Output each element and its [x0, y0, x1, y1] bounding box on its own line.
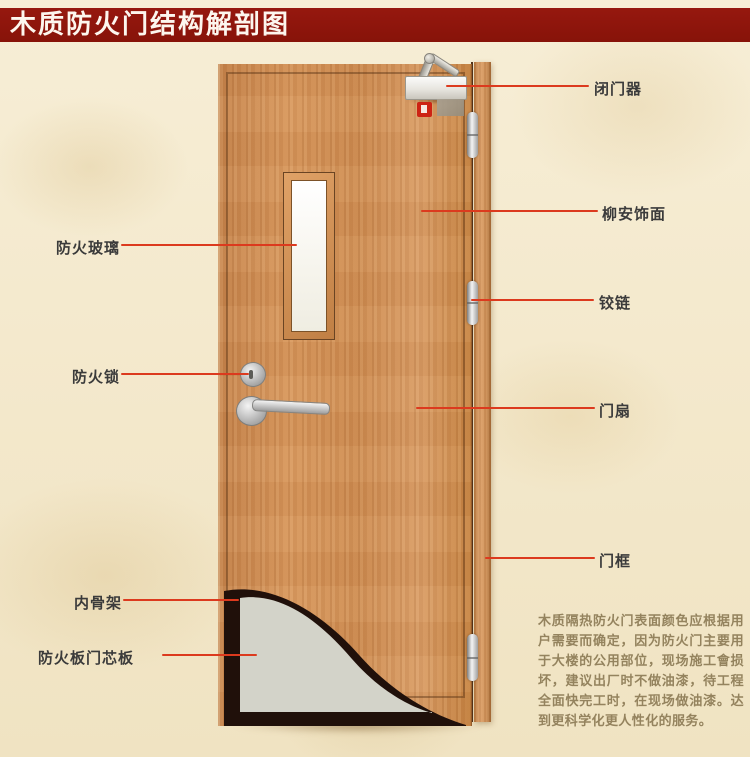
callout-door-leaf: 门扇 [599, 400, 631, 421]
callout-inner-skeleton: 内骨架 [74, 592, 122, 613]
callout-fire-lock: 防火锁 [72, 366, 120, 387]
callout-door-closer: 闭门器 [594, 78, 642, 99]
callout-hinge: 铰链 [599, 292, 631, 313]
description-text: 木质隔热防火门表面颜色应根据用户需要而确定，因为防火门主要用于大楼的公用部位，现… [538, 612, 744, 732]
callout-fire-board-core: 防火板门芯板 [38, 647, 134, 668]
callout-lauan-veneer: 柳安饰面 [602, 203, 666, 224]
callout-door-frame: 门框 [599, 550, 631, 571]
fire-door-anatomy-diagram: 木质防火门结构解剖图 [0, 0, 750, 757]
callout-fireproof-glass: 防火玻璃 [56, 237, 120, 258]
